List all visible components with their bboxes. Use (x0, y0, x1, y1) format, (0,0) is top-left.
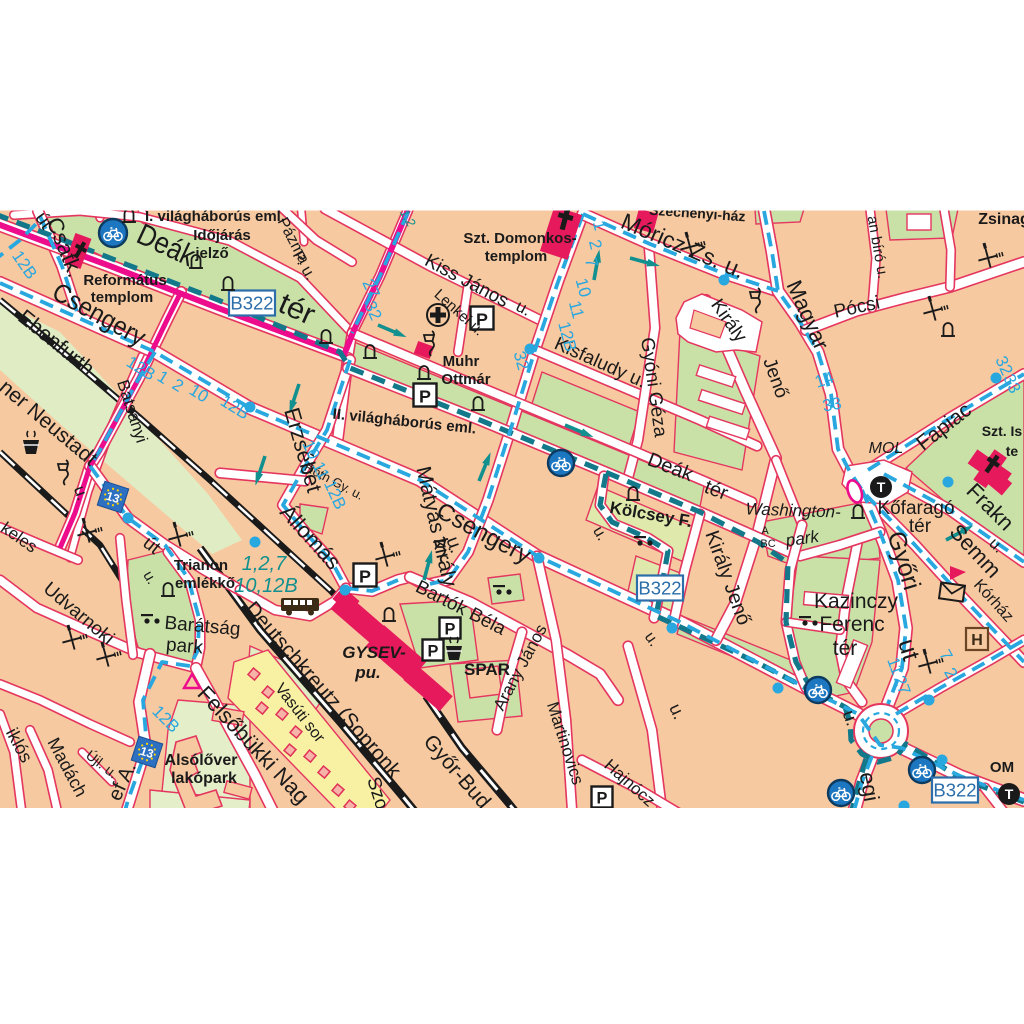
svg-text:A: A (761, 525, 769, 537)
svg-text:Kazinczy: Kazinczy (814, 590, 899, 613)
svg-text:P: P (445, 621, 456, 639)
svg-text:te: te (1006, 443, 1019, 459)
svg-text:Washington-: Washington- (745, 499, 841, 521)
svg-text:Református: Református (83, 272, 166, 289)
svg-text:egi: egi (855, 770, 885, 803)
svg-text:tér: tér (833, 637, 858, 660)
svg-text:Trianon: Trianon (174, 557, 228, 574)
svg-text:H: H (971, 632, 983, 649)
svg-text:lakópark: lakópark (171, 770, 237, 787)
svg-text:park: park (165, 634, 204, 658)
svg-text:B322: B322 (230, 293, 273, 314)
svg-text:10,12B: 10,12B (234, 575, 297, 597)
svg-text:P: P (597, 790, 608, 808)
svg-text:pu.: pu. (354, 663, 381, 682)
svg-text:P: P (428, 643, 439, 661)
svg-text:tér: tér (909, 516, 932, 537)
svg-text:1,2,7: 1,2,7 (242, 553, 287, 575)
svg-text:Ferenc: Ferenc (819, 613, 884, 636)
svg-text:Muhr: Muhr (443, 353, 480, 370)
svg-text:SPAR: SPAR (464, 660, 510, 679)
svg-text:P: P (419, 386, 431, 406)
svg-text:I. világháborús eml.: I. világháborús eml. (145, 208, 285, 225)
svg-text:Alsólőver: Alsólőver (165, 752, 238, 769)
svg-text:Szt. Domonkos-: Szt. Domonkos- (463, 230, 576, 247)
svg-text:MOL: MOL (869, 440, 904, 457)
svg-text:33: 33 (821, 394, 843, 416)
svg-text:Szt. Is: Szt. Is (982, 423, 1023, 439)
svg-text:emlékkő: emlékkő (175, 575, 235, 592)
svg-text:P: P (359, 566, 371, 586)
svg-text:Ottmár: Ottmár (441, 371, 490, 388)
svg-text:BC: BC (760, 538, 775, 550)
svg-text:Zsinag: Zsinag (978, 211, 1024, 228)
svg-text:T: T (877, 479, 886, 495)
svg-text:Időjárás: Időjárás (193, 227, 251, 244)
svg-text:templom: templom (485, 248, 548, 265)
svg-text:templom: templom (91, 289, 154, 306)
svg-text:T: T (1005, 786, 1014, 802)
svg-text:GYSEV-: GYSEV- (342, 643, 406, 662)
svg-text:B322: B322 (933, 780, 976, 801)
svg-text:B322: B322 (638, 578, 681, 599)
svg-text:OM: OM (990, 759, 1014, 776)
svg-text:jelző: jelző (194, 245, 228, 262)
